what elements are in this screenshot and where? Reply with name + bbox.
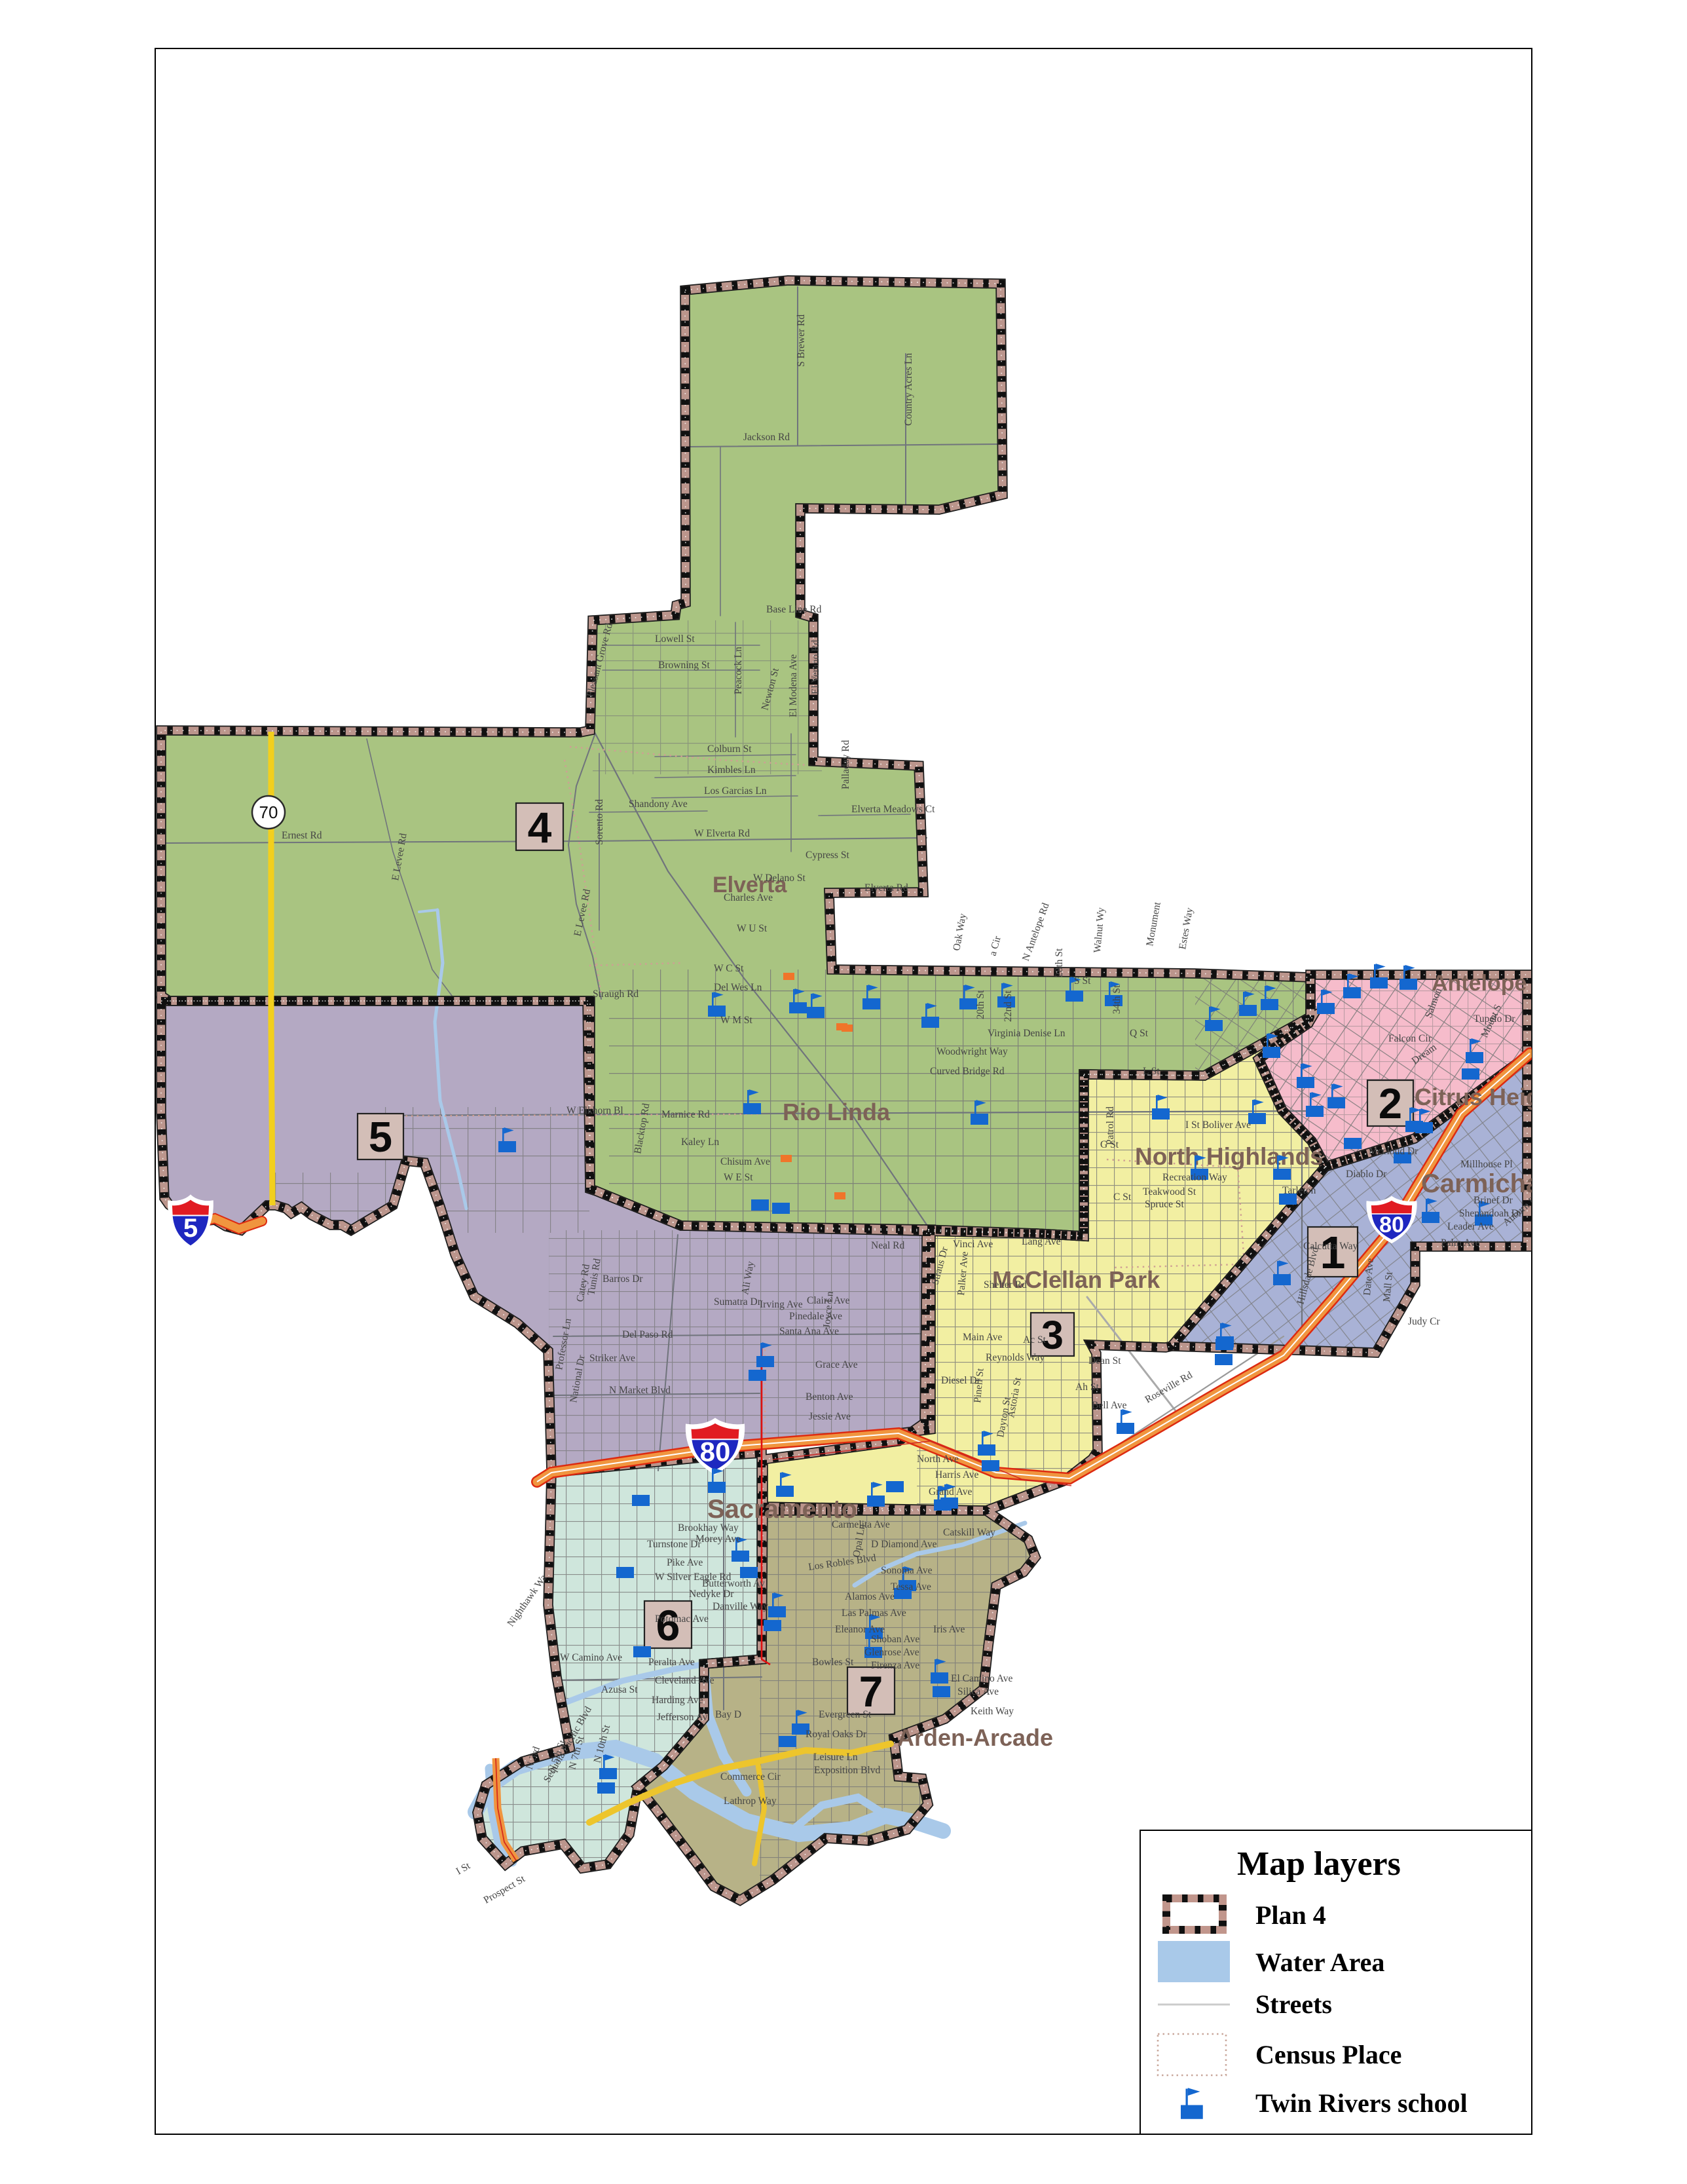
svg-text:Palladay Rd: Palladay Rd bbox=[840, 740, 851, 789]
svg-text:Elverta Meadows Ct: Elverta Meadows Ct bbox=[851, 804, 935, 815]
svg-text:W Elverta Rd: W Elverta Rd bbox=[694, 828, 750, 839]
svg-text:El Camino Ave: El Camino Ave bbox=[951, 1673, 1013, 1684]
svg-text:Marnice Rd: Marnice Rd bbox=[661, 1109, 710, 1120]
svg-text:Ernest Rd: Ernest Rd bbox=[282, 830, 322, 841]
svg-text:Pike Ave: Pike Ave bbox=[667, 1557, 703, 1568]
svg-text:70: 70 bbox=[259, 802, 278, 822]
svg-text:Danville Way: Danville Way bbox=[713, 1601, 768, 1612]
svg-text:Jessie Ave: Jessie Ave bbox=[809, 1411, 851, 1422]
svg-text:Bay D: Bay D bbox=[715, 1709, 741, 1720]
svg-text:W Camino Ave: W Camino Ave bbox=[560, 1652, 622, 1663]
svg-text:Palm Ave: Palm Ave bbox=[1441, 1237, 1480, 1249]
svg-text:Iris Ave: Iris Ave bbox=[933, 1624, 965, 1635]
svg-text:Alamos Ave: Alamos Ave bbox=[845, 1591, 895, 1602]
svg-text:Shoban Ave: Shoban Ave bbox=[871, 1634, 919, 1645]
svg-text:Chisum Ave: Chisum Ave bbox=[720, 1156, 770, 1167]
svg-text:Brookhay Way: Brookhay Way bbox=[678, 1522, 739, 1534]
svg-text:Curved Bridge Rd: Curved Bridge Rd bbox=[930, 1066, 1005, 1077]
svg-text:Virginia Denise Ln: Virginia Denise Ln bbox=[988, 1028, 1066, 1039]
svg-text:Kaley Ln: Kaley Ln bbox=[681, 1137, 719, 1148]
svg-text:North Highlands: North Highlands bbox=[1135, 1143, 1324, 1170]
svg-text:Evergreen St: Evergreen St bbox=[819, 1709, 872, 1720]
svg-text:Millhouse Pl: Millhouse Pl bbox=[1460, 1159, 1513, 1170]
svg-text:Q St: Q St bbox=[1130, 1028, 1149, 1039]
svg-text:S St: S St bbox=[1074, 975, 1091, 987]
svg-text:Judy Cr: Judy Cr bbox=[1408, 1316, 1440, 1327]
svg-text:28th St: 28th St bbox=[1054, 948, 1065, 977]
svg-text:Del Paso Rd: Del Paso Rd bbox=[622, 1329, 673, 1340]
svg-text:Turnstone Dr: Turnstone Dr bbox=[647, 1539, 701, 1550]
svg-text:Lang Ave: Lang Ave bbox=[1022, 1236, 1061, 1247]
svg-text:Glenrose Ave: Glenrose Ave bbox=[864, 1647, 919, 1658]
svg-text:Brinef Dr: Brinef Dr bbox=[1474, 1195, 1513, 1206]
svg-text:Barros Dr: Barros Dr bbox=[602, 1273, 643, 1285]
svg-text:W C St: W C St bbox=[714, 963, 744, 974]
svg-text:Jackson Rd: Jackson Rd bbox=[743, 432, 790, 443]
svg-text:Grace Ave: Grace Ave bbox=[815, 1359, 858, 1370]
svg-text:Irving Ave: Irving Ave bbox=[760, 1299, 803, 1310]
svg-text:Main Ave: Main Ave bbox=[963, 1332, 1003, 1343]
svg-text:Woodwright Way: Woodwright Way bbox=[936, 1046, 1008, 1057]
svg-text:Striker Ave: Striker Ave bbox=[589, 1353, 635, 1364]
svg-text:Teakwood St: Teakwood St bbox=[1143, 1186, 1196, 1197]
svg-text:Ac St: Ac St bbox=[1023, 1334, 1047, 1346]
svg-text:1: 1 bbox=[1320, 1227, 1346, 1278]
svg-text:Peacock Ln: Peacock Ln bbox=[733, 647, 744, 694]
svg-text:Commerce Cir: Commerce Cir bbox=[720, 1771, 781, 1782]
svg-text:Lowell St: Lowell St bbox=[655, 633, 695, 645]
svg-text:Los Garcias Ln: Los Garcias Ln bbox=[704, 785, 767, 797]
svg-text:L St: L St bbox=[1143, 1066, 1160, 1077]
svg-text:Base Line Rd: Base Line Rd bbox=[766, 604, 822, 615]
svg-text:Pinedale Ave: Pinedale Ave bbox=[789, 1311, 842, 1322]
svg-text:5: 5 bbox=[369, 1113, 392, 1161]
svg-text:Kimbles Ln: Kimbles Ln bbox=[707, 764, 756, 776]
svg-text:Royal Oaks Dr: Royal Oaks Dr bbox=[806, 1729, 867, 1740]
svg-text:Harding Ave: Harding Ave bbox=[652, 1695, 703, 1706]
svg-text:D Diamond Ave: D Diamond Ave bbox=[871, 1539, 937, 1550]
svg-text:Keith Way: Keith Way bbox=[971, 1706, 1014, 1717]
svg-text:Elverta Rd: Elverta Rd bbox=[864, 882, 908, 894]
svg-text:2: 2 bbox=[1379, 1080, 1402, 1127]
svg-text:Falcon Cir: Falcon Cir bbox=[1388, 1033, 1432, 1044]
svg-text:Las Palmas Ave: Las Palmas Ave bbox=[842, 1608, 906, 1619]
svg-text:Streets: Streets bbox=[1255, 1989, 1332, 2019]
svg-text:Bell Ave: Bell Ave bbox=[1092, 1400, 1127, 1411]
svg-text:W M St: W M St bbox=[720, 1015, 753, 1026]
svg-text:Mccloud Dr: Mccloud Dr bbox=[1369, 1146, 1418, 1157]
svg-text:Patrol Rd: Patrol Rd bbox=[1105, 1106, 1116, 1145]
svg-text:Leisure Ln: Leisure Ln bbox=[813, 1752, 858, 1763]
svg-text:5: 5 bbox=[183, 1214, 198, 1243]
svg-text:Tarleton: Tarleton bbox=[1282, 1185, 1316, 1196]
svg-text:Colburn St: Colburn St bbox=[707, 744, 752, 755]
svg-text:Country Acres Ln: Country Acres Ln bbox=[903, 353, 914, 426]
svg-text:El Verano Rd: El Verano Rd bbox=[810, 640, 821, 694]
svg-text:Twin Rivers school: Twin Rivers school bbox=[1255, 2088, 1468, 2118]
svg-text:Sorento Rd: Sorento Rd bbox=[594, 799, 605, 845]
svg-text:80: 80 bbox=[700, 1437, 731, 1467]
svg-text:Ah St: Ah St bbox=[1075, 1382, 1099, 1393]
svg-text:Butterworth Av: Butterworth Av bbox=[702, 1578, 765, 1589]
svg-text:W U St: W U St bbox=[737, 923, 768, 934]
svg-text:I St Boliver Ave: I St Boliver Ave bbox=[1185, 1120, 1251, 1131]
svg-text:Charles Ave: Charles Ave bbox=[724, 892, 773, 903]
svg-text:Azusa St: Azusa St bbox=[601, 1684, 638, 1695]
svg-text:Del Wes Ln: Del Wes Ln bbox=[714, 982, 762, 993]
svg-text:Browning St: Browning St bbox=[658, 660, 710, 671]
svg-text:Vinci Ave: Vinci Ave bbox=[953, 1239, 993, 1250]
svg-text:Neal Rd: Neal Rd bbox=[871, 1240, 904, 1251]
svg-text:Leader Ave: Leader Ave bbox=[1447, 1221, 1494, 1232]
svg-text:Firenza Ave: Firenza Ave bbox=[871, 1660, 919, 1671]
svg-text:80: 80 bbox=[1379, 1213, 1404, 1237]
svg-text:Spruce St: Spruce St bbox=[1145, 1199, 1185, 1210]
svg-text:Reynolds Way: Reynolds Way bbox=[986, 1352, 1045, 1363]
svg-text:Nedyke Dr: Nedyke Dr bbox=[689, 1589, 734, 1600]
svg-text:Bowles St: Bowles St bbox=[812, 1657, 854, 1668]
svg-text:Rio Linda: Rio Linda bbox=[783, 1099, 891, 1125]
svg-text:Census Place: Census Place bbox=[1255, 2040, 1401, 2069]
svg-text:Sumatra Dr: Sumatra Dr bbox=[714, 1296, 762, 1308]
svg-text:7: 7 bbox=[859, 1667, 883, 1716]
svg-text:Jefferson Av: Jefferson Av bbox=[657, 1712, 708, 1723]
svg-text:C St: C St bbox=[1113, 1192, 1132, 1203]
svg-text:Map layers: Map layers bbox=[1237, 1845, 1401, 1883]
svg-text:Tessa Ave: Tessa Ave bbox=[891, 1581, 931, 1592]
svg-text:Grand Ave: Grand Ave bbox=[929, 1486, 973, 1497]
svg-text:Arden-Arcade: Arden-Arcade bbox=[897, 1724, 1053, 1751]
svg-text:Recreation Way: Recreation Way bbox=[1162, 1172, 1227, 1183]
svg-text:W Delano St: W Delano St bbox=[753, 873, 806, 884]
svg-text:Silica Ave: Silica Ave bbox=[957, 1686, 999, 1697]
svg-text:S Brewer Rd: S Brewer Rd bbox=[796, 314, 807, 367]
svg-text:W Elkhorn Bl: W Elkhorn Bl bbox=[566, 1105, 623, 1116]
svg-text:W E St: W E St bbox=[724, 1172, 753, 1183]
svg-text:Harris Ave: Harris Ave bbox=[935, 1469, 979, 1480]
svg-text:20th St: 20th St bbox=[975, 990, 986, 1019]
svg-text:Sonoma Ave: Sonoma Ave bbox=[881, 1565, 933, 1576]
svg-text:Dean St: Dean St bbox=[1088, 1355, 1121, 1366]
svg-text:El Modena Ave: El Modena Ave bbox=[788, 654, 799, 717]
svg-text:Diablo Dr: Diablo Dr bbox=[1346, 1169, 1387, 1180]
svg-text:Water Area: Water Area bbox=[1255, 1948, 1384, 1977]
svg-text:Catskill Way: Catskill Way bbox=[943, 1527, 995, 1538]
svg-text:Peralta Ave: Peralta Ave bbox=[648, 1657, 695, 1668]
svg-text:Shelter Rd: Shelter Rd bbox=[984, 1279, 1027, 1290]
svg-text:Benton Ave: Benton Ave bbox=[806, 1391, 853, 1403]
svg-text:N Market Blvd: N Market Blvd bbox=[609, 1385, 671, 1396]
svg-text:Antelope: Antelope bbox=[1432, 971, 1527, 996]
svg-text:4: 4 bbox=[528, 803, 552, 852]
svg-text:Lathrop Way: Lathrop Way bbox=[724, 1796, 777, 1807]
svg-text:Cypress St: Cypress St bbox=[806, 850, 849, 861]
svg-text:Plan 4: Plan 4 bbox=[1255, 1900, 1326, 1930]
svg-text:22nd St: 22nd St bbox=[1003, 990, 1014, 1022]
svg-text:6: 6 bbox=[656, 1601, 680, 1649]
svg-text:Potomac Ave: Potomac Ave bbox=[655, 1613, 709, 1625]
svg-text:Morey Ave: Morey Ave bbox=[695, 1534, 741, 1545]
svg-text:Straugh Rd: Straugh Rd bbox=[593, 988, 639, 1000]
svg-text:Cleveland Ave: Cleveland Ave bbox=[655, 1675, 714, 1686]
svg-text:Shandony Ave: Shandony Ave bbox=[629, 799, 688, 810]
svg-text:North Ave: North Ave bbox=[917, 1454, 959, 1465]
svg-text:34th St: 34th St bbox=[1111, 985, 1122, 1014]
svg-text:Exposition Blvd: Exposition Blvd bbox=[814, 1765, 880, 1776]
